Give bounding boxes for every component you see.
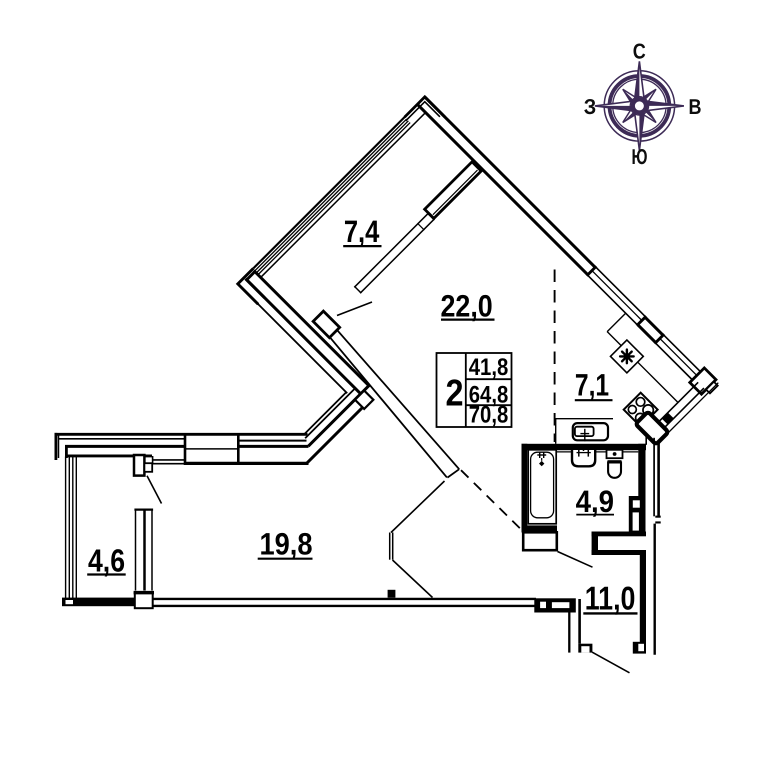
svg-text:7,1: 7,1	[575, 368, 609, 403]
svg-text:70,8: 70,8	[469, 401, 509, 428]
svg-text:Ю: Ю	[632, 145, 648, 169]
svg-text:11,0: 11,0	[585, 579, 636, 616]
svg-text:З: З	[584, 95, 597, 119]
svg-text:22,0: 22,0	[441, 288, 493, 323]
svg-text:41,8: 41,8	[469, 354, 509, 381]
svg-text:7,4: 7,4	[344, 214, 380, 249]
svg-text:В: В	[689, 95, 702, 119]
svg-text:С: С	[633, 39, 646, 63]
svg-text:19,8: 19,8	[260, 527, 313, 562]
svg-text:2: 2	[446, 371, 464, 413]
svg-text:4,6: 4,6	[88, 542, 125, 578]
